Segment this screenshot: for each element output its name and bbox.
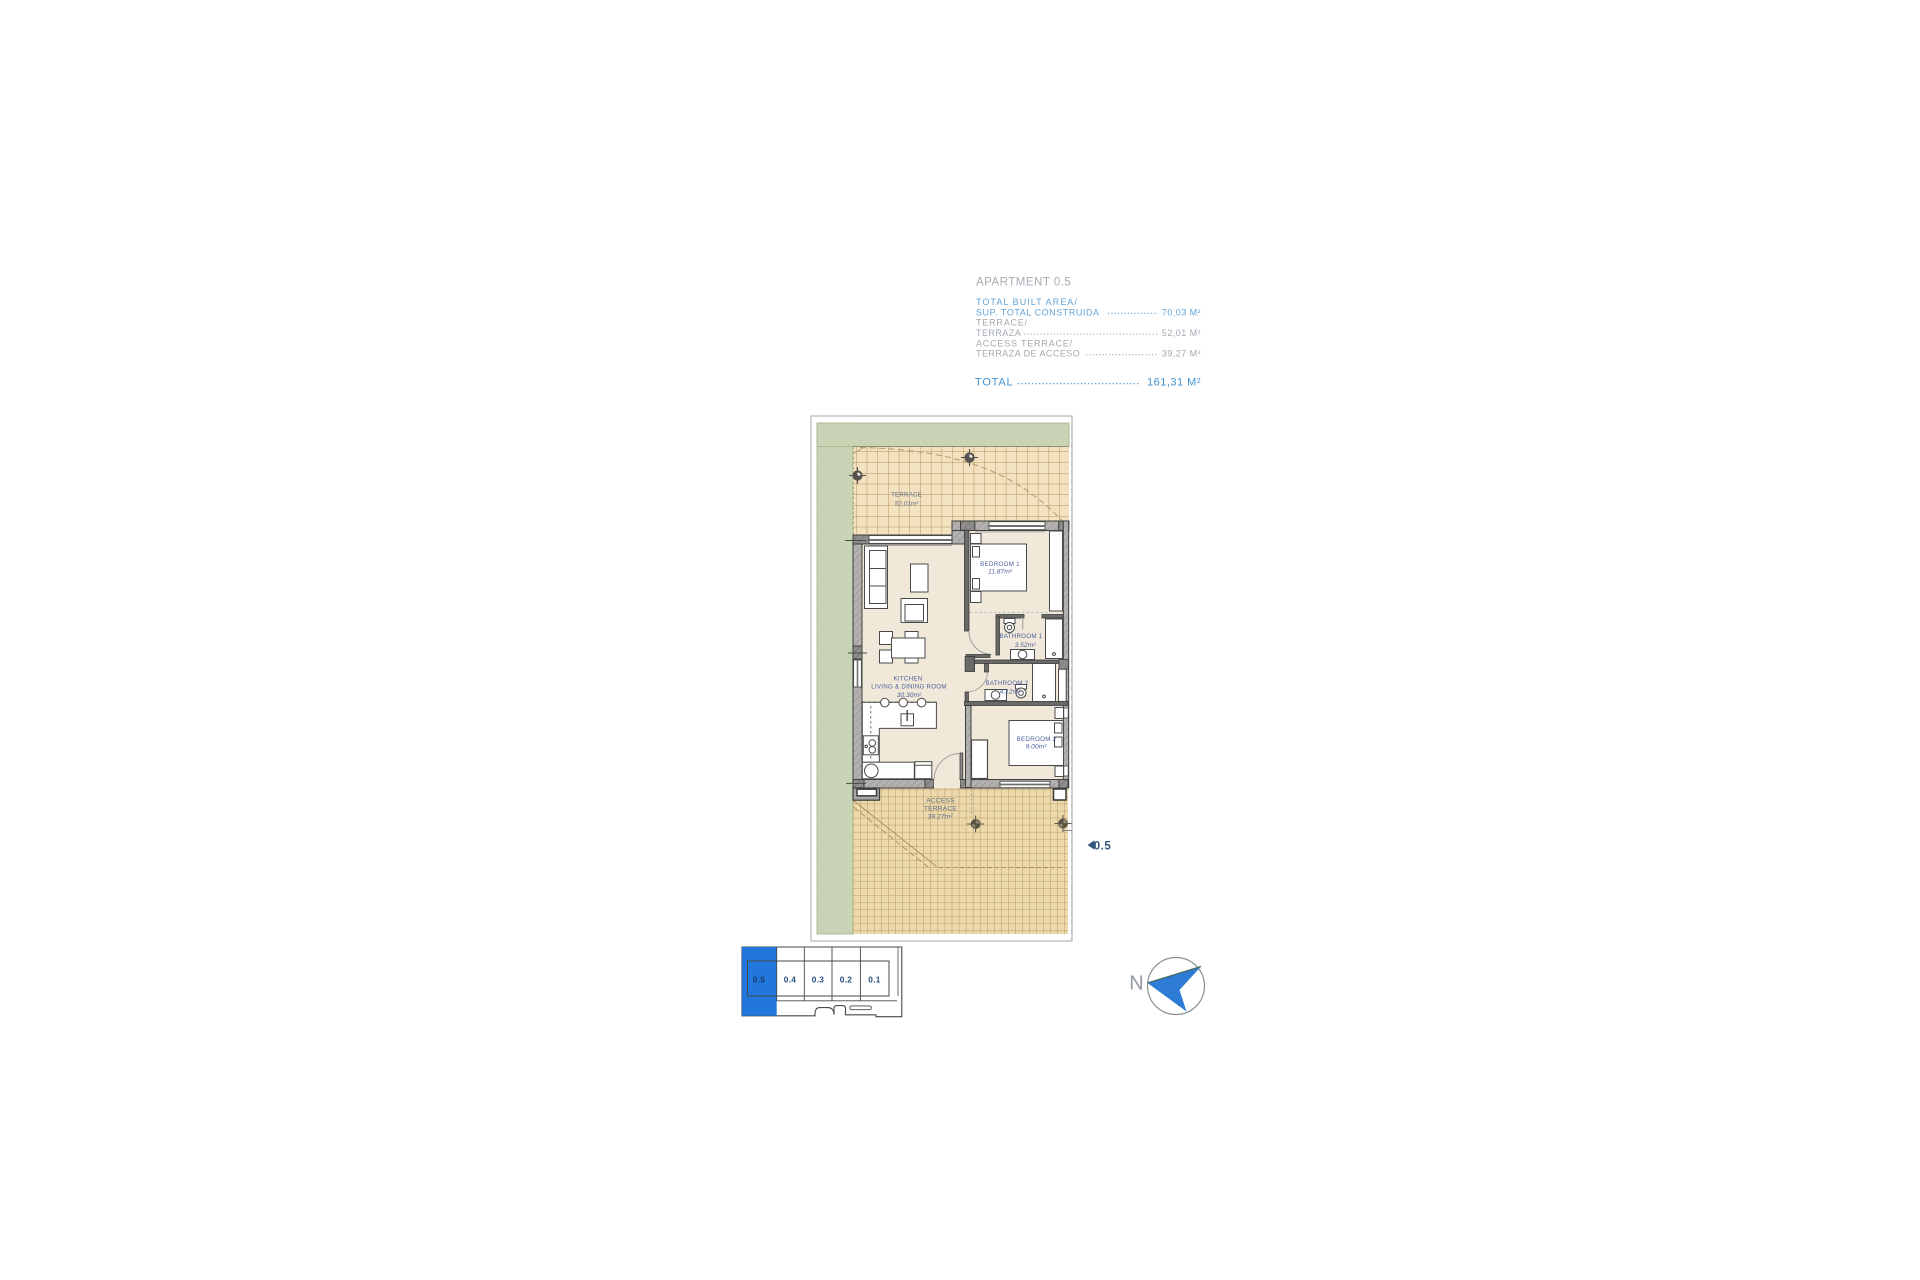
svg-text:4.12m²: 4.12m² (1000, 688, 1022, 695)
svg-text:70,03 M²: 70,03 M² (1162, 307, 1201, 317)
svg-text:TERRAZA DE ACCESO: TERRAZA DE ACCESO (976, 349, 1080, 359)
svg-text:30.30m²: 30.30m² (897, 692, 922, 699)
svg-text:KITCHEN: KITCHEN (894, 676, 923, 683)
svg-text:SUP. TOTAL CONSTRUIDA: SUP. TOTAL CONSTRUIDA (976, 307, 1100, 317)
svg-text:0.4: 0.4 (784, 975, 797, 985)
svg-text:3.52m²: 3.52m² (1015, 642, 1037, 649)
svg-text:0.1: 0.1 (868, 975, 881, 985)
svg-text:0.5: 0.5 (1094, 841, 1112, 853)
svg-text:9.00m²: 9.00m² (1026, 744, 1048, 751)
svg-text:BEDROOM 2: BEDROOM 2 (1017, 736, 1057, 743)
svg-text:TERRACE/: TERRACE/ (976, 318, 1028, 328)
svg-text:LIVING & DINING ROOM: LIVING & DINING ROOM (871, 684, 946, 691)
svg-text:0.3: 0.3 (812, 975, 825, 985)
svg-text:39,27 M²: 39,27 M² (1162, 349, 1201, 359)
svg-text:N: N (1129, 973, 1143, 995)
svg-text:APARTMENT 0.5: APARTMENT 0.5 (976, 277, 1071, 289)
svg-text:52,01 M²: 52,01 M² (1162, 328, 1201, 338)
svg-text:TOTAL: TOTAL (975, 377, 1013, 389)
svg-text:BATHROOM 1: BATHROOM 1 (1000, 633, 1043, 640)
svg-text:TERRACE: TERRACE (924, 805, 958, 812)
svg-text:BEDROOM 1: BEDROOM 1 (980, 561, 1020, 568)
svg-text:161,31 M²: 161,31 M² (1147, 377, 1201, 389)
svg-text:0.2: 0.2 (840, 975, 853, 985)
svg-text:11.87m²: 11.87m² (988, 569, 1013, 576)
svg-text:BATHROOM 2: BATHROOM 2 (986, 680, 1029, 687)
svg-text:TERRACE: TERRACE (891, 492, 922, 499)
svg-text:ACCESS: ACCESS (926, 798, 955, 805)
svg-text:TERRAZA: TERRAZA (976, 328, 1021, 338)
svg-text:ACCESS TERRACE/: ACCESS TERRACE/ (976, 338, 1073, 348)
svg-text:39.27m²: 39.27m² (928, 813, 954, 820)
svg-text:TOTAL BUILT AREA/: TOTAL BUILT AREA/ (976, 297, 1078, 307)
svg-text:52.01m²: 52.01m² (895, 501, 919, 508)
svg-text:0.5: 0.5 (753, 975, 766, 985)
